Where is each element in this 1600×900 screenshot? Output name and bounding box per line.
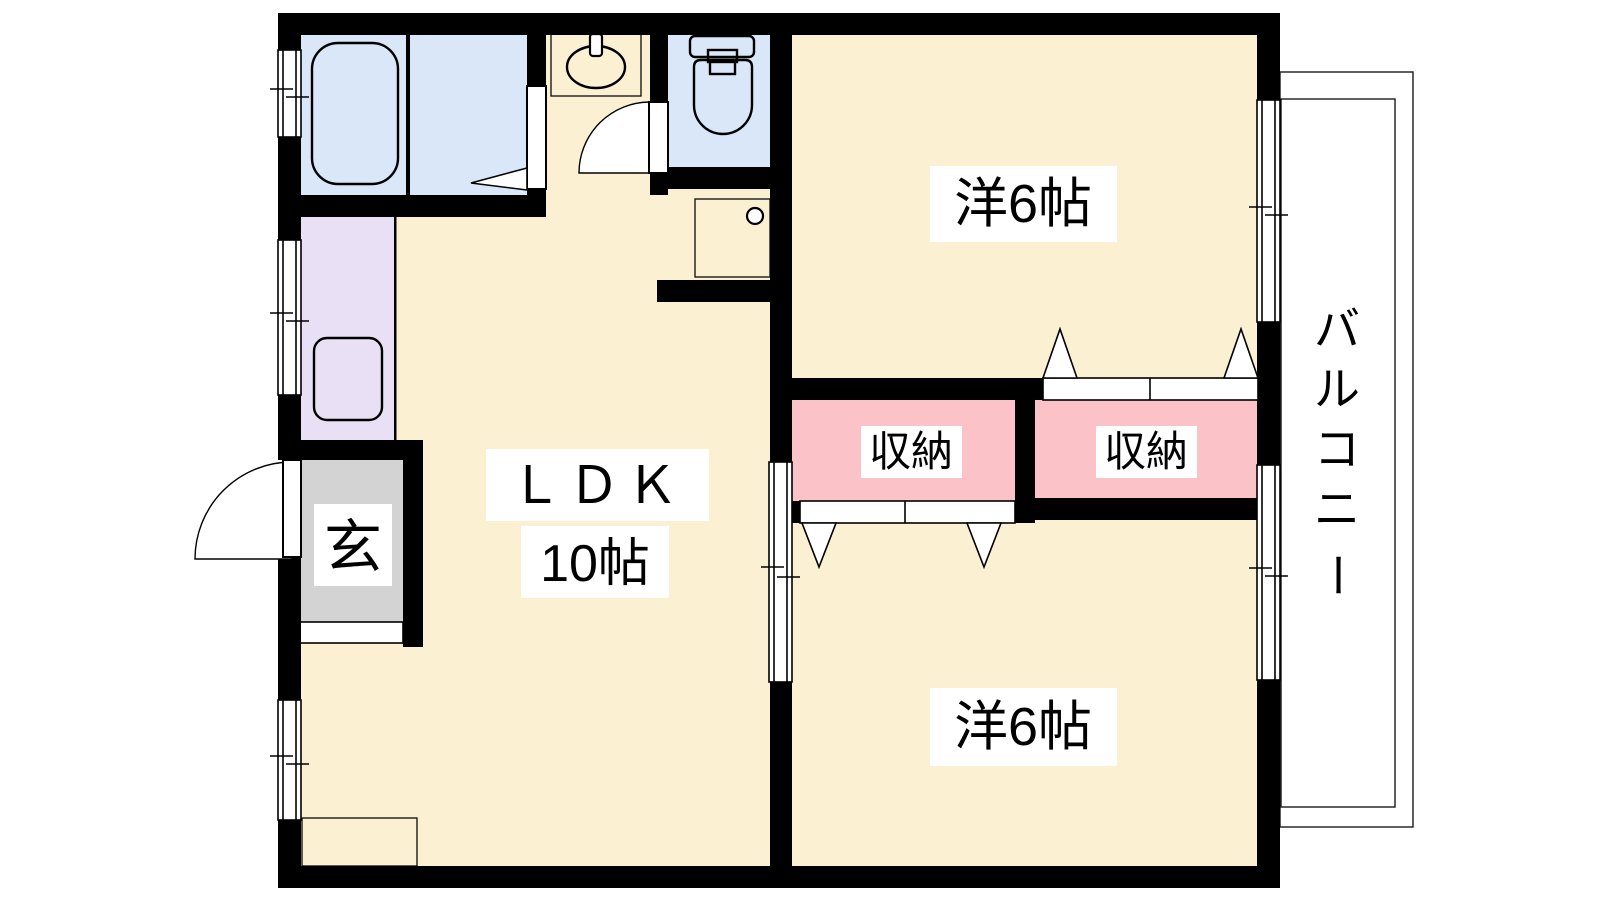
closet-right-label: 収納 [1104, 428, 1188, 475]
wall-left-seg3 [278, 395, 301, 460]
kitchen-area [300, 215, 397, 440]
bathroom-divider-wall [406, 35, 410, 195]
wall-closet-right-bottom [1015, 498, 1258, 520]
entrance-door-leaf [283, 460, 301, 557]
ldk-label: ＬＤＫ [510, 457, 684, 515]
entrance-label: 玄 [324, 515, 382, 580]
entrance-area: 玄 [300, 460, 403, 643]
western-bottom-label: 洋6帖 [954, 697, 1092, 757]
kitchen-edge-line [394, 215, 397, 440]
wall-right-seg2 [1257, 322, 1280, 465]
wall-left-seg4 [278, 557, 301, 700]
entrance-door [195, 460, 301, 559]
closet-left-label: 収納 [869, 428, 953, 475]
toilet-floor [668, 35, 770, 167]
floor-plan: バ ル コ ニ ー 玄 [0, 0, 1600, 900]
wall-right-seg3 [1257, 680, 1280, 888]
closet-right: 収納 [1035, 400, 1258, 498]
wall-outer-top [278, 13, 1280, 35]
entrance-step [300, 622, 403, 643]
balcony-label-char2: ル [1314, 363, 1360, 415]
wall-right-seg1 [1257, 13, 1280, 100]
washroom-door-leaf [527, 86, 546, 189]
balcony-label-char3: コ [1314, 423, 1360, 475]
ldk-size-label: 10帖 [540, 535, 650, 593]
western-top-label: 洋6帖 [954, 174, 1092, 234]
toilet-room [668, 35, 770, 167]
bathroom-area [300, 35, 527, 195]
wall-entrance-right [403, 440, 423, 647]
wall-left-seg2 [278, 137, 301, 240]
wall-washer-bottom [657, 280, 770, 302]
balcony-label-char1: バ [1314, 303, 1360, 355]
wall-left-seg5 [278, 820, 301, 888]
entrance-door-swing [195, 462, 292, 559]
wall-center-lower [770, 682, 792, 888]
toilet-door-leaf [649, 102, 668, 173]
washbasin-tap-icon [590, 34, 602, 56]
balcony-label-char4: ニ [1314, 483, 1360, 535]
wall-left-seg1 [278, 13, 301, 50]
closet-left: 収納 [791, 400, 1015, 501]
bathroom-floor [300, 35, 527, 195]
wall-bath-bottom [300, 195, 546, 217]
balcony: バ ル コ ニ ー [1280, 72, 1413, 827]
balcony-label-char5: ー [1311, 552, 1363, 598]
washer-drain-icon [747, 208, 763, 224]
wall-closet-top [770, 378, 1043, 400]
